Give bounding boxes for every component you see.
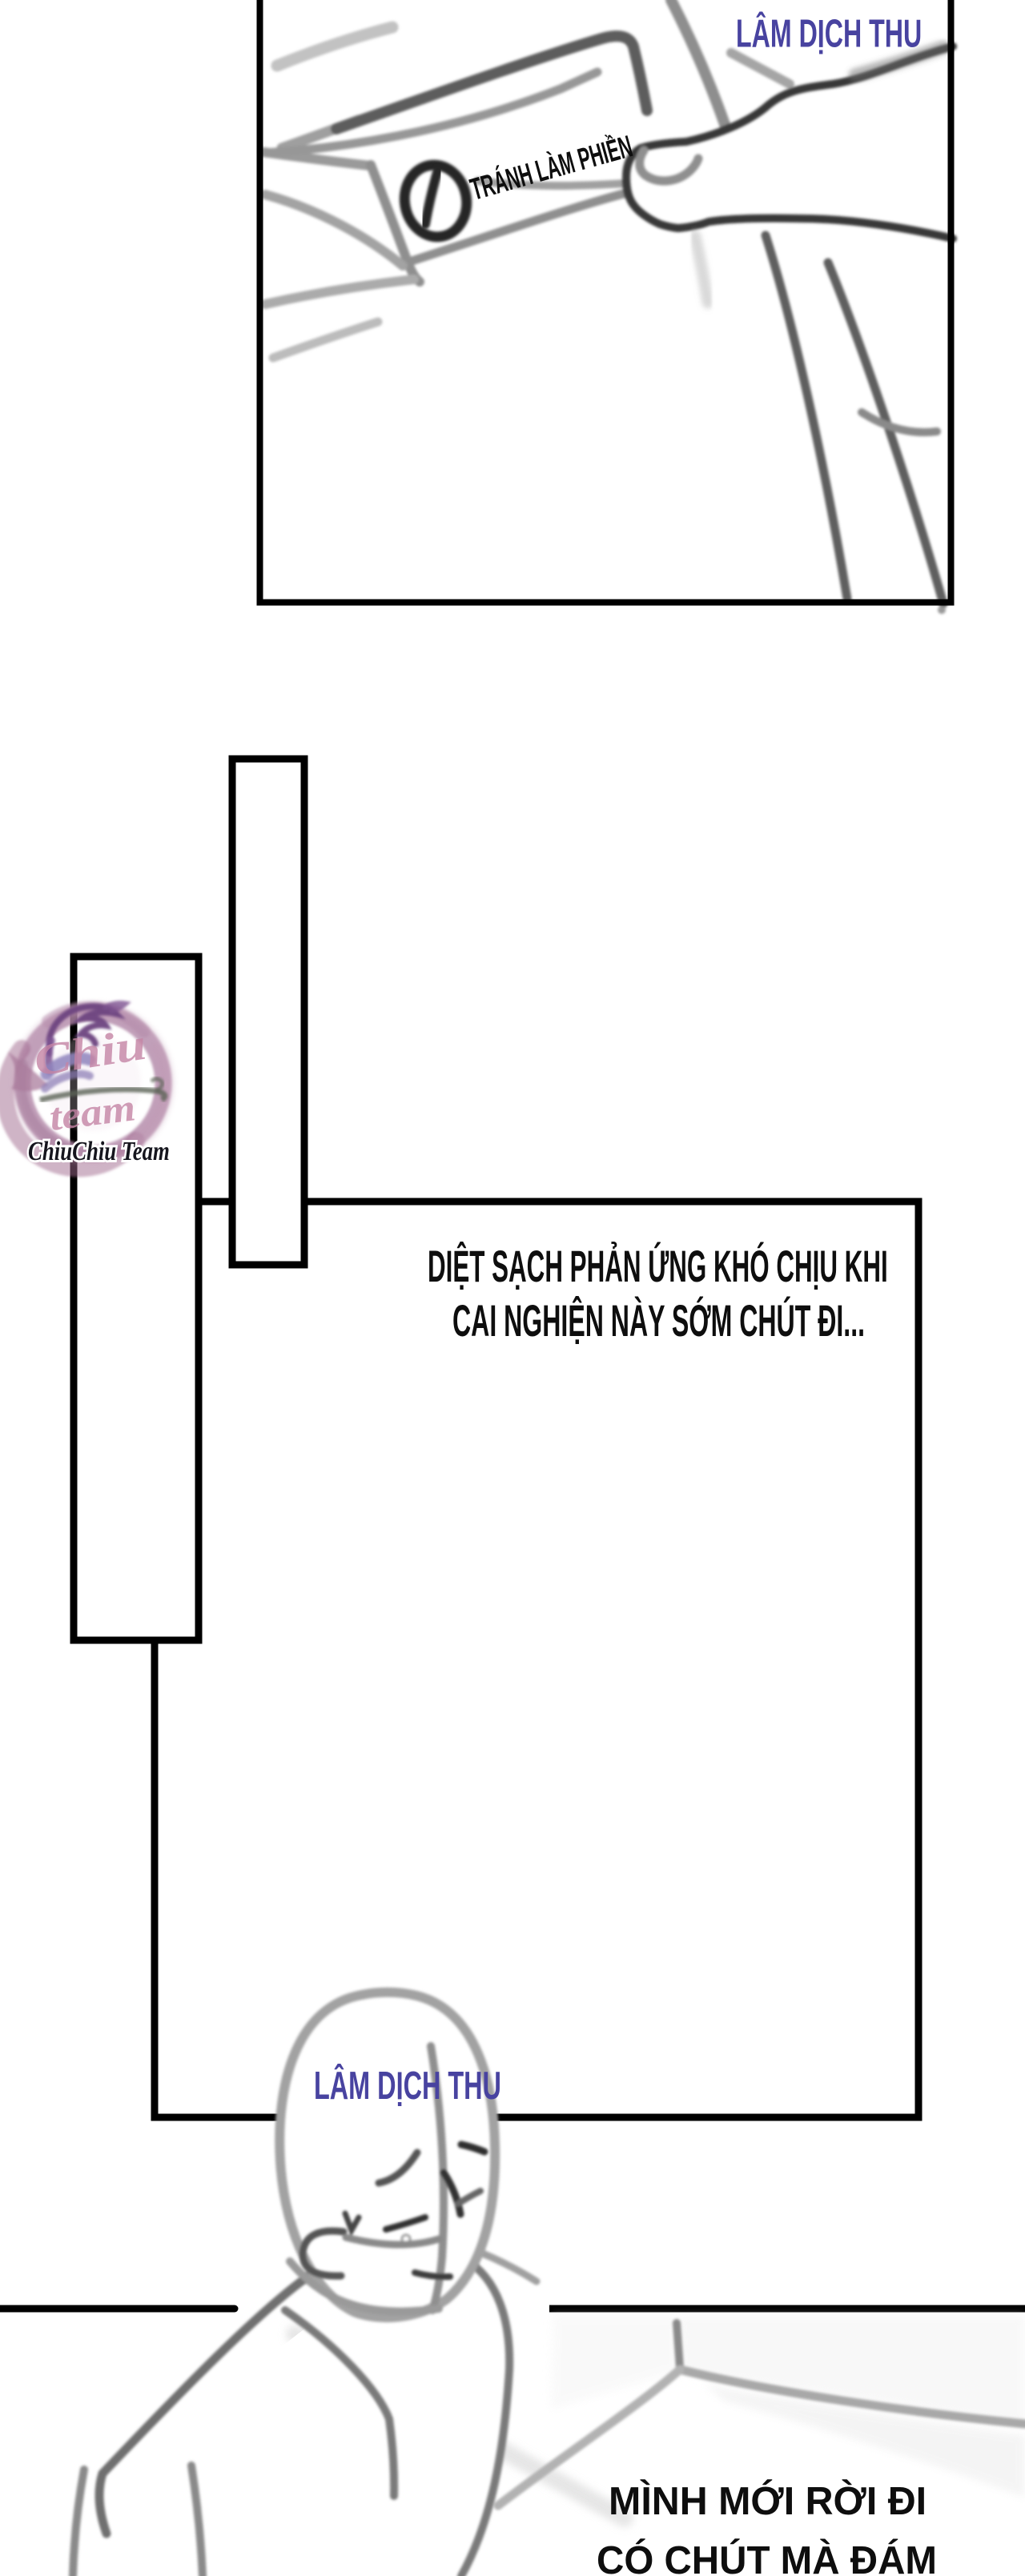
svg-text:CÓ CHÚT MÀ ĐÁM: CÓ CHÚT MÀ ĐÁM: [597, 2538, 937, 2576]
svg-text:ChiuChiu Team: ChiuChiu Team: [28, 1136, 170, 1166]
svg-text:MÌNH MỚI RỜI ĐI: MÌNH MỚI RỜI ĐI: [609, 2479, 927, 2524]
svg-text:CAI NGHIỆN NÀY SỚM CHÚT ĐI...: CAI NGHIỆN NÀY SỚM CHÚT ĐI...: [452, 1295, 865, 1346]
svg-text:LÂM DỊCH THU: LÂM DỊCH THU: [314, 2062, 501, 2108]
svg-text:LÂM DỊCH THU: LÂM DỊCH THU: [736, 10, 922, 55]
svg-text:DIỆT SẠCH PHẢN ỨNG KHÓ CHỊU KH: DIỆT SẠCH PHẢN ỨNG KHÓ CHỊU KHI: [428, 1241, 888, 1291]
